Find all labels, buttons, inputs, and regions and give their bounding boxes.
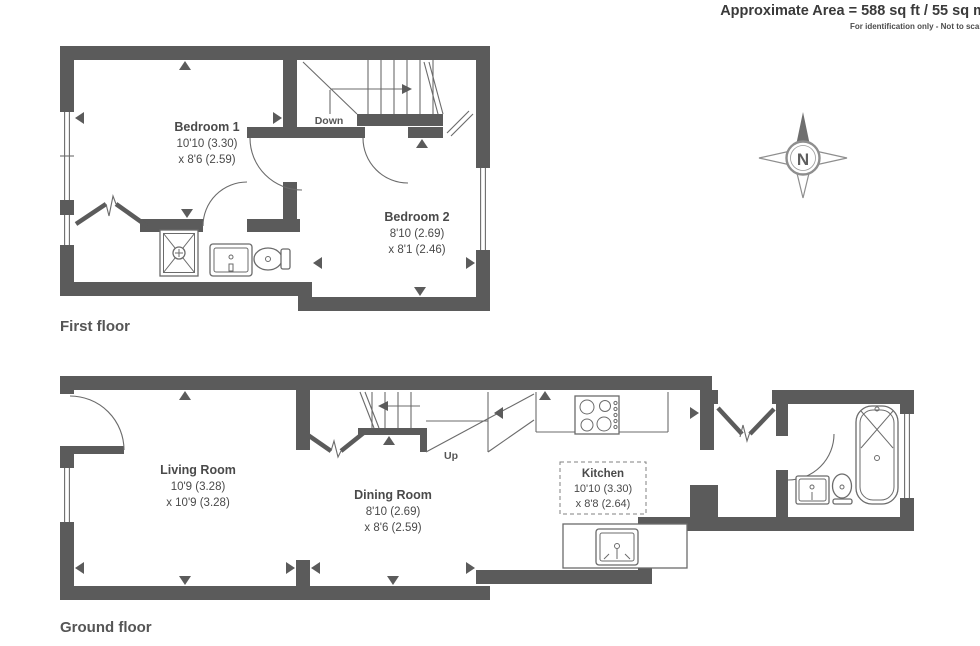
- kitchen-sink: [563, 524, 687, 568]
- door-arc: [203, 182, 247, 226]
- ground-floor-caption: Ground floor: [60, 619, 152, 636]
- first-floor-bathroom: [160, 230, 290, 276]
- stairs-up-label: Up: [444, 450, 458, 462]
- room-label-kitchen: Kitchen: [582, 468, 624, 480]
- ground-floor-plan: Living Room 10'9 (3.28) x 10'9 (3.28) Di…: [60, 376, 914, 636]
- bathtub: [856, 406, 898, 504]
- first-floor-caption: First floor: [60, 318, 130, 335]
- window: [60, 468, 74, 522]
- stairs-down-label: Down: [315, 115, 344, 127]
- room-dim1-bedroom1: 10'10 (3.30): [176, 138, 237, 150]
- kitchen-fixtures: [536, 392, 687, 568]
- staircase-first-floor: [303, 60, 443, 114]
- room-dim2-bedroom2: x 8'1 (2.46): [388, 244, 445, 256]
- room-dim1-living: 10'9 (3.28): [171, 481, 226, 493]
- ground-floor-bathroom: [796, 406, 898, 504]
- room-label-living: Living Room: [160, 463, 236, 477]
- room-label-dining: Dining Room: [354, 488, 432, 502]
- sink: [210, 244, 252, 276]
- toilet: [833, 474, 853, 504]
- room-dim1-bedroom2: 8'10 (2.69): [390, 228, 445, 240]
- bathroom-door-arc: [788, 434, 834, 480]
- sink: [796, 476, 829, 504]
- room-dim2-dining: x 8'6 (2.59): [364, 522, 421, 534]
- floorplan-drawing: N: [0, 0, 980, 646]
- first-floor-plan: Bedroom 1 10'10 (3.30) x 8'6 (2.59) Bedr…: [60, 46, 490, 335]
- window: [476, 168, 490, 250]
- room-dim1-kitchen: 10'10 (3.30): [574, 483, 632, 495]
- stairs-direction-arrow: [378, 401, 388, 411]
- floorplan-page: Approximate Area = 588 sq ft / 55 sq m F…: [0, 0, 980, 646]
- shower: [160, 230, 198, 276]
- header: Approximate Area = 588 sq ft / 55 sq m F…: [720, 3, 980, 31]
- room-label-bedroom1: Bedroom 1: [174, 120, 239, 134]
- first-floor-angled-wall: [76, 196, 147, 226]
- room-dim1-dining: 8'10 (2.69): [366, 506, 421, 518]
- disclaimer-label: For identification only - Not to scale: [720, 22, 980, 31]
- door-leaf-diagonal: [447, 111, 473, 136]
- room-label-bedroom2: Bedroom 2: [384, 210, 449, 224]
- compass-north-label: N: [797, 150, 809, 169]
- door-arc: [363, 138, 408, 183]
- window: [60, 215, 74, 245]
- room-dim2-kitchen: x 8'8 (2.64): [576, 498, 631, 510]
- room-dim2-living: x 10'9 (3.28): [166, 497, 230, 509]
- approximate-area-label: Approximate Area = 588 sq ft / 55 sq m: [720, 3, 980, 19]
- hob: [575, 396, 619, 434]
- ground-floor-angled-wall: [305, 431, 366, 457]
- front-door-arc: [70, 396, 124, 450]
- window: [900, 414, 914, 498]
- rear-door: [718, 408, 774, 441]
- room-dim2-bedroom1: x 8'6 (2.59): [178, 154, 235, 166]
- window: [60, 112, 74, 200]
- first-floor-outer-walls: [60, 46, 490, 311]
- toilet: [254, 248, 290, 270]
- compass-rose: N: [759, 112, 847, 198]
